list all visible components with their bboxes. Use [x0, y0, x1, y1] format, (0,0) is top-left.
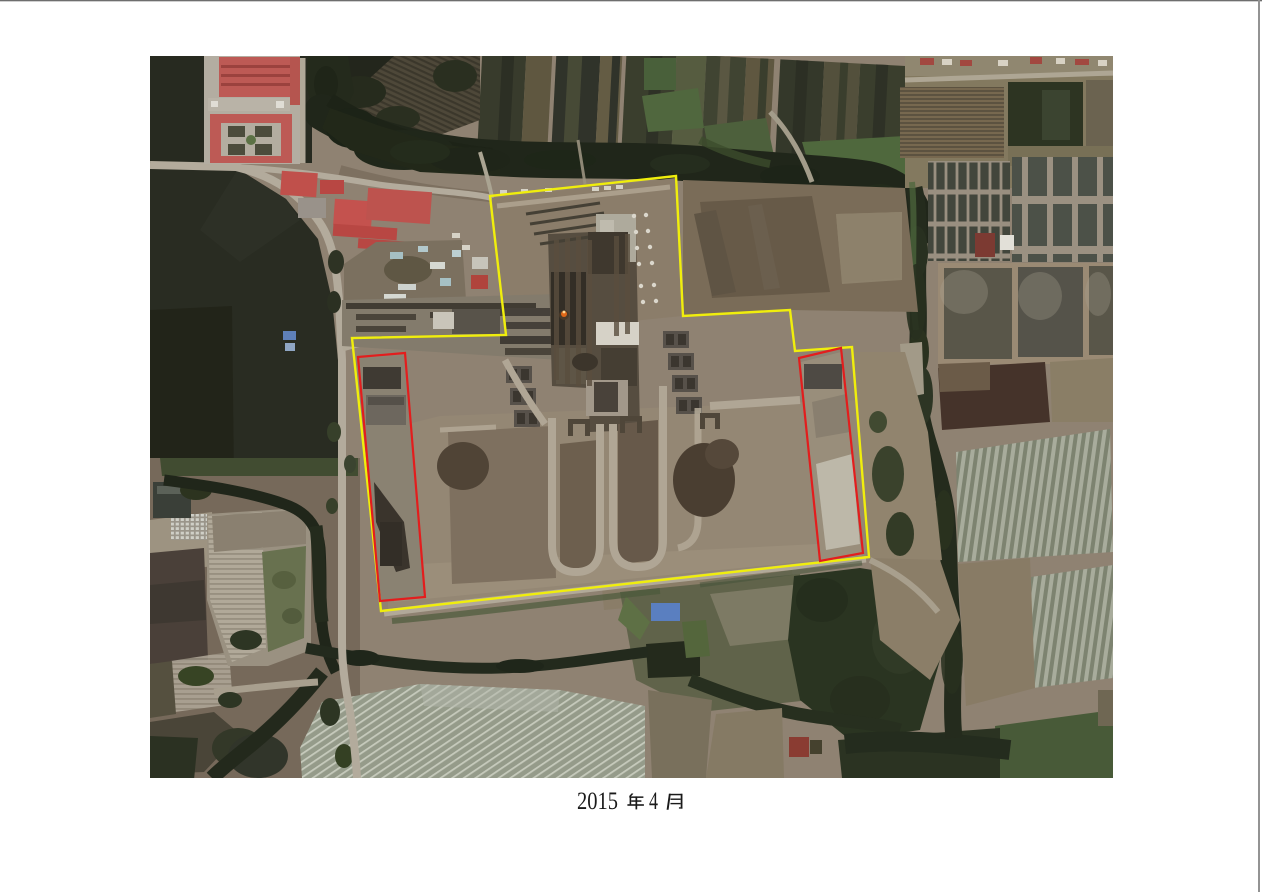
svg-text:4: 4: [649, 788, 658, 815]
svg-text:2015: 2015: [577, 788, 618, 815]
